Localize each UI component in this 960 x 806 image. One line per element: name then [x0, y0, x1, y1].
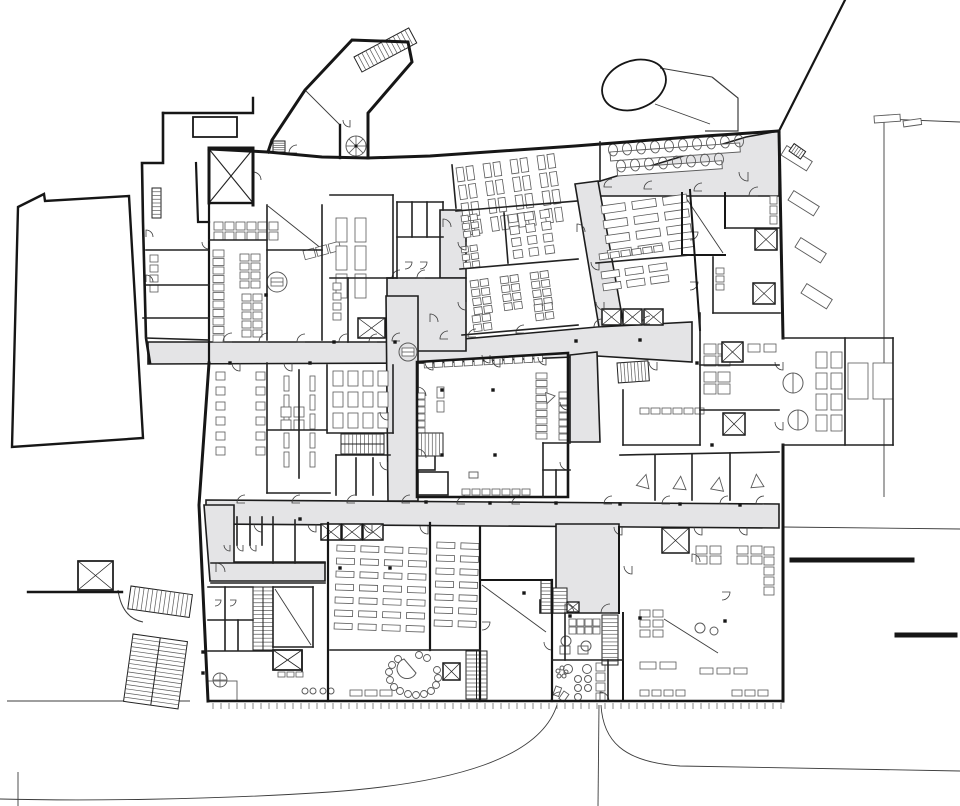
furniture-rect: [684, 408, 693, 414]
furniture-rect: [748, 344, 760, 352]
column-dot: [424, 500, 427, 503]
furniture-rect: [236, 232, 245, 240]
furniture-grid: [240, 254, 260, 288]
furniture-rect: [502, 489, 510, 495]
furniture-rect: [500, 276, 509, 284]
furniture-rect: [482, 489, 490, 495]
furniture-rect: [461, 215, 469, 222]
furniture-grid: [333, 283, 341, 320]
furniture-rect: [333, 293, 341, 300]
furniture-circle: [556, 669, 560, 673]
column-dot: [522, 591, 525, 594]
thin-line: [660, 68, 712, 77]
grand-piano-icon: [750, 474, 764, 488]
circle: [320, 688, 326, 694]
furniture-rect: [363, 371, 373, 386]
furniture-rect: [253, 330, 262, 337]
furniture-rect: [788, 191, 819, 216]
furniture-rect: [696, 556, 707, 564]
furniture-rect: [515, 195, 524, 210]
furniture-rect: [585, 627, 592, 634]
furniture-rect: [536, 396, 547, 402]
furniture-rect: [350, 690, 362, 696]
door-swing-icon: [230, 600, 236, 606]
stair-icon: [253, 587, 273, 650]
furniture-rect: [216, 432, 225, 440]
furniture-rect: [213, 335, 224, 342]
furniture-rect: [407, 586, 425, 593]
furniture-rect: [383, 586, 401, 593]
furniture-rect: [333, 392, 343, 407]
furniture-rect: [213, 327, 224, 334]
column-dot: [710, 443, 713, 446]
door-swing-icon: [343, 120, 350, 127]
furniture-rect: [734, 668, 747, 674]
furniture-circle: [267, 272, 287, 292]
floor-plan-page: [0, 0, 960, 806]
furniture-rect: [253, 303, 262, 310]
furniture-rect: [216, 372, 225, 380]
column-dot: [554, 501, 557, 504]
furniture-rect: [470, 214, 478, 221]
furniture-grid: [530, 270, 553, 306]
furniture-rect: [541, 221, 551, 230]
furniture-rect: [717, 668, 730, 674]
furniture-rect: [480, 278, 489, 286]
furniture-rect: [831, 373, 842, 389]
furniture-rect: [383, 599, 401, 606]
furniture-rect: [585, 619, 592, 626]
stair-icon: [418, 433, 443, 456]
column-dot: [393, 340, 396, 343]
furniture-rect: [363, 413, 373, 428]
furniture-grid: [569, 619, 600, 634]
furniture-circle: [575, 694, 582, 701]
furniture-grid: [334, 545, 427, 632]
furniture-rect: [653, 245, 663, 252]
circle: [556, 669, 560, 673]
furniture-rect: [242, 330, 251, 337]
furniture-rect: [704, 384, 716, 394]
furniture-rect: [471, 253, 479, 260]
furniture-rect: [536, 373, 547, 379]
furniture-rect: [213, 250, 224, 257]
furniture-rect: [640, 662, 656, 669]
furniture-rect: [751, 556, 762, 564]
furniture-rect: [336, 246, 347, 270]
chair-icon: [386, 669, 393, 676]
circle: [583, 665, 592, 674]
site-line: [0, 705, 557, 800]
furniture-grid: [500, 274, 523, 310]
wall-line: [196, 163, 209, 222]
door-swing-icon: [297, 334, 305, 342]
furniture-rect: [764, 344, 776, 352]
furniture-rect: [531, 281, 540, 289]
grand-piano-icon: [636, 473, 652, 489]
furniture-rect: [335, 597, 353, 604]
furniture-circle: [585, 676, 592, 683]
furniture-rect: [213, 293, 224, 300]
tree-icon: [213, 673, 227, 687]
furniture-rect: [466, 166, 475, 181]
furniture-rect: [472, 315, 481, 323]
circle: [575, 676, 582, 683]
furniture-rect: [737, 546, 748, 554]
furniture-rect: [610, 251, 620, 258]
door-swing-icon: [482, 622, 490, 630]
cylindrical-volume: [594, 50, 673, 119]
furniture-grid: [764, 547, 774, 595]
furniture-rect: [660, 662, 676, 669]
furniture-rect: [216, 417, 225, 425]
elevator-shaft-icon: [567, 602, 579, 612]
elevator-shaft-icon: [755, 229, 777, 250]
circle: [354, 144, 357, 147]
furniture-rect: [378, 371, 388, 386]
furniture-rect: [436, 568, 454, 575]
furniture-rect: [601, 203, 626, 214]
furniture-grid: [640, 662, 676, 669]
furniture-rect: [407, 599, 425, 606]
furniture-rect: [242, 294, 251, 301]
furniture-rect: [508, 214, 518, 223]
furniture-rect: [336, 218, 347, 242]
furniture-rect: [459, 595, 477, 602]
furniture-rect: [593, 627, 600, 634]
furniture-rect: [240, 263, 249, 270]
circle: [585, 676, 592, 683]
furniture-rect: [634, 213, 659, 224]
furniture-rect: [751, 546, 762, 554]
wall-line: [779, 0, 845, 131]
furniture-rect: [520, 158, 529, 173]
furniture-rect: [253, 321, 262, 328]
furniture-grid: [716, 268, 724, 290]
furniture-rect: [513, 177, 522, 192]
stair-icon: [124, 634, 188, 709]
furniture-circle: [583, 665, 592, 674]
wall-line: [779, 131, 783, 338]
furniture-rect: [336, 558, 354, 565]
furniture-grid: [640, 610, 663, 637]
column-dot: [678, 502, 681, 505]
furniture-rect: [537, 155, 546, 170]
furniture-rect: [333, 413, 343, 428]
furniture-rect: [409, 548, 427, 555]
door-swing-icon: [649, 362, 657, 370]
furniture-grid: [470, 278, 493, 314]
furniture-rect: [242, 321, 251, 328]
furniture-grid: [640, 408, 704, 414]
furniture-rect: [795, 238, 826, 263]
furniture-rect: [848, 363, 868, 399]
furniture-rect: [296, 672, 303, 677]
furniture-grid: [242, 294, 262, 337]
furniture-rect: [510, 159, 519, 174]
chair-icon: [389, 662, 396, 669]
furniture-rect: [559, 427, 568, 433]
furniture-rect: [527, 235, 537, 244]
furniture-grid: [770, 196, 777, 224]
furniture-rect: [764, 587, 774, 595]
furniture-rect: [463, 231, 471, 238]
furniture-rect: [360, 572, 378, 579]
thin-line: [482, 585, 546, 632]
furniture-rect: [240, 272, 249, 279]
furniture-rect: [649, 263, 668, 272]
furniture-rect: [471, 222, 479, 229]
furniture-rect: [359, 611, 377, 618]
furniture-rect: [278, 672, 285, 677]
furniture-rect: [310, 452, 315, 467]
furniture-rect: [474, 307, 483, 315]
furniture-rect: [284, 433, 289, 448]
furniture-rect: [472, 261, 480, 268]
door-swing-icon: [420, 262, 427, 269]
furniture-circle: [575, 676, 582, 683]
furniture-rect: [242, 312, 251, 319]
furniture-rect: [732, 690, 742, 696]
furniture-rect: [664, 209, 689, 220]
furniture-rect: [493, 162, 502, 177]
furniture-rect: [650, 275, 669, 284]
furniture-rect: [536, 411, 547, 417]
door-swing-icon: [215, 600, 221, 606]
furniture-rect: [511, 283, 520, 291]
furniture-rect: [696, 546, 707, 554]
chair-icon: [413, 692, 420, 699]
wall-line: [142, 113, 163, 363]
furniture-rect: [541, 279, 550, 287]
furniture-rect: [553, 686, 562, 697]
site-canopy: [78, 561, 113, 590]
furniture-rect: [831, 415, 842, 431]
thin-line: [783, 527, 960, 529]
furniture-grid: [640, 690, 685, 696]
furniture-rect: [365, 690, 377, 696]
column-dot: [618, 502, 621, 505]
furniture-rect: [764, 577, 774, 585]
door-swing-icon: [380, 462, 388, 470]
furniture-rect: [512, 489, 520, 495]
furniture-rect: [534, 304, 543, 312]
furniture-rect: [764, 547, 774, 555]
furniture-rect: [459, 608, 477, 615]
furniture-circle: [695, 623, 705, 633]
site-line: [601, 705, 960, 771]
furniture-rect: [737, 556, 748, 564]
furniture-rect: [816, 415, 827, 431]
furniture-rect: [251, 281, 260, 288]
furniture-rect: [632, 198, 657, 209]
furniture-rect: [359, 585, 377, 592]
circle: [310, 688, 316, 694]
door-swing-icon: [417, 270, 425, 278]
furniture-rect: [359, 598, 377, 605]
furniture-rect: [150, 285, 158, 292]
furniture-grid: [256, 372, 265, 455]
furniture-rect: [831, 394, 842, 410]
rect: [541, 580, 551, 613]
furniture-rect: [504, 303, 513, 311]
grand-piano-icon: [673, 476, 687, 490]
chair-icon: [433, 682, 440, 689]
elevator-shaft-icon: [342, 524, 362, 540]
furniture-rect: [256, 432, 265, 440]
corridor-hall-west: [386, 296, 418, 501]
furniture-rect: [533, 290, 542, 298]
furniture-rect: [256, 372, 265, 380]
furniture-rect: [559, 413, 568, 419]
furniture-rect: [459, 582, 477, 589]
column-dot: [388, 566, 391, 569]
elevator-shaft-icon: [753, 283, 775, 304]
furniture-rect: [150, 275, 158, 282]
furniture-rect: [596, 683, 605, 691]
elevator-shaft-icon: [321, 524, 341, 540]
elevator-shaft-icon: [443, 663, 460, 680]
corridor-hall-east: [570, 352, 600, 442]
door-swing-icon: [420, 526, 428, 534]
circle: [575, 694, 582, 701]
furniture-rect: [640, 690, 649, 696]
stair-icon: [541, 580, 551, 613]
circle: [562, 674, 566, 678]
furniture-rect: [256, 417, 265, 425]
furniture-grid: [732, 690, 768, 696]
furniture-grid: [737, 546, 762, 564]
furniture-rect: [621, 250, 631, 257]
furniture-rect: [456, 167, 465, 182]
column-dot: [491, 388, 494, 391]
chair-icon: [405, 691, 412, 698]
furniture-rect: [764, 567, 774, 575]
furniture-rect: [524, 212, 534, 221]
chair-icon: [434, 667, 441, 674]
floor-plan-canvas: [0, 0, 960, 806]
furniture-rect: [251, 263, 260, 270]
furniture-grid: [534, 302, 554, 320]
furniture-rect: [540, 270, 549, 278]
column-dot: [695, 361, 698, 364]
furniture-rect: [348, 413, 358, 428]
chair-icon: [424, 655, 431, 662]
furniture-rect: [472, 489, 480, 495]
furniture-rect: [640, 620, 650, 627]
furniture-rect: [653, 620, 663, 627]
furniture-rect: [510, 274, 519, 282]
furniture-rect: [498, 197, 507, 212]
furniture-rect: [434, 620, 452, 627]
furniture-rect: [816, 352, 827, 368]
furniture-rect: [569, 627, 576, 634]
column-dot: [201, 671, 204, 674]
elevator-shaft-icon: [273, 650, 302, 670]
furniture-rect: [526, 223, 536, 232]
furniture-rect: [462, 254, 470, 261]
furniture-rect: [718, 372, 730, 382]
furniture-rect: [536, 433, 547, 439]
furniture-rect: [662, 408, 671, 414]
furniture-grid: [350, 690, 392, 696]
furniture-rect: [360, 559, 378, 566]
column-dot: [488, 501, 491, 504]
furniture-rect: [545, 311, 554, 319]
stair-icon: [128, 586, 193, 617]
furniture-rect: [462, 489, 470, 495]
furniture-rect: [435, 607, 453, 614]
door-swing-icon: [289, 145, 297, 153]
furniture-rect: [458, 621, 476, 628]
furniture-circle: [562, 674, 566, 678]
furniture-rect: [549, 171, 558, 186]
furniture-rect: [495, 179, 504, 194]
door-swing-icon: [544, 642, 552, 650]
furniture-rect: [468, 183, 477, 198]
furniture-rect: [831, 352, 842, 368]
furniture-rect: [269, 232, 278, 240]
furniture-rect: [333, 283, 341, 290]
furniture-rect: [470, 280, 479, 288]
elevator-shaft-icon: [623, 309, 642, 325]
furniture-grid: [333, 371, 388, 428]
furniture-rect: [337, 545, 355, 552]
furniture-rect: [213, 284, 224, 291]
thin-line: [305, 90, 340, 125]
furniture-grid: [596, 663, 605, 701]
furniture-grid: [216, 372, 225, 455]
circle: [585, 685, 592, 692]
furniture-rect: [385, 547, 403, 554]
circle: [557, 674, 561, 678]
circle: [695, 623, 705, 633]
circle: [710, 627, 718, 635]
furniture-rect: [150, 255, 158, 262]
furniture-rect: [335, 610, 353, 617]
furniture-rect: [710, 556, 721, 564]
furniture-rect: [435, 581, 453, 588]
furniture-rect: [625, 266, 644, 275]
furniture-grid: [213, 250, 224, 342]
site-line: [705, 77, 738, 131]
furniture-circle: [788, 410, 808, 430]
furniture-rect: [437, 401, 444, 412]
furniture-rect: [473, 298, 482, 306]
piano-icon: [397, 659, 416, 679]
furniture-rect: [676, 690, 685, 696]
elevator-shaft-icon: [723, 413, 745, 435]
bicycle-icon: [302, 688, 308, 694]
furniture-rect: [816, 394, 827, 410]
furniture-rect: [208, 681, 237, 701]
furniture-rect: [214, 222, 223, 230]
furniture-rect: [700, 668, 713, 674]
furniture-rect: [636, 228, 661, 239]
furniture-rect: [256, 402, 265, 410]
chair-icon: [435, 675, 442, 682]
furniture-rect: [258, 232, 267, 240]
furniture-rect: [436, 555, 454, 562]
furniture-rect: [242, 303, 251, 310]
column-dot: [264, 293, 267, 296]
furniture-rect: [540, 173, 549, 188]
furniture-rect: [530, 272, 539, 280]
door-swing-icon: [250, 545, 256, 551]
furniture-rect: [716, 276, 724, 282]
furniture-rect: [253, 294, 262, 301]
furniture-rect: [384, 573, 402, 580]
